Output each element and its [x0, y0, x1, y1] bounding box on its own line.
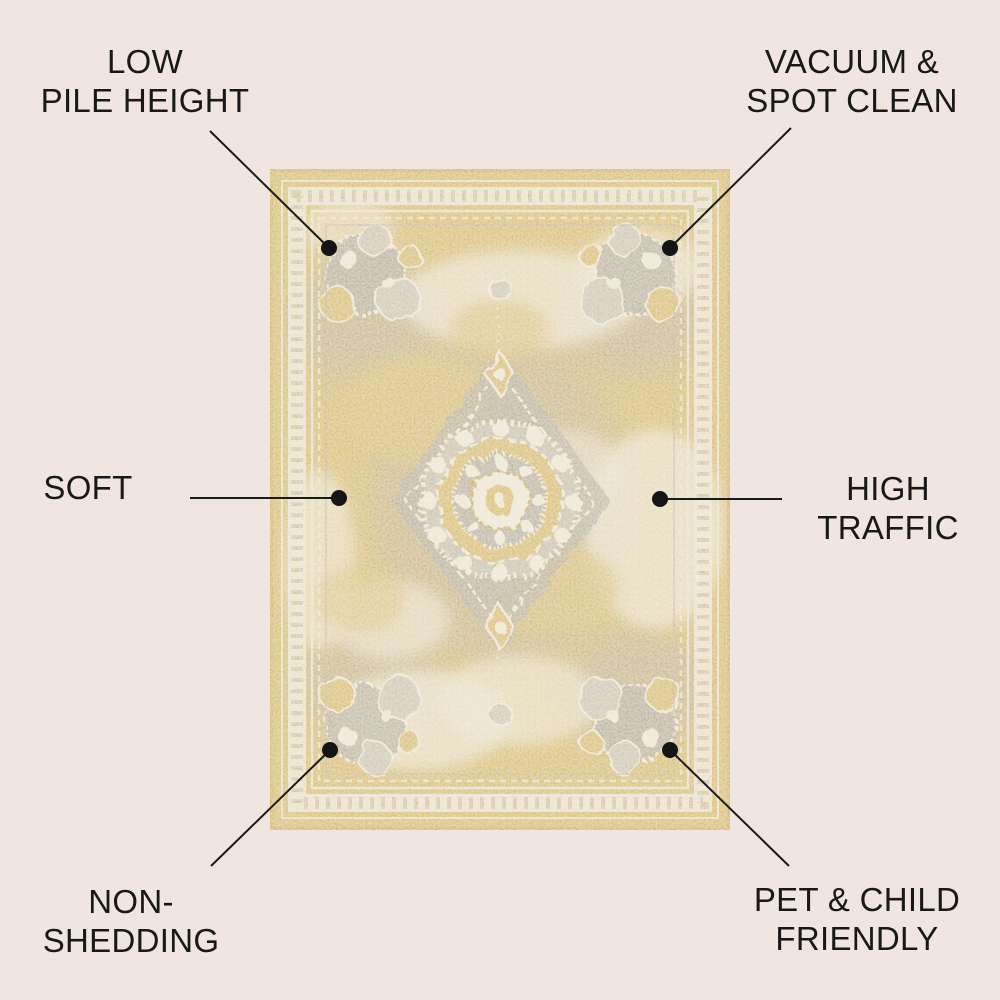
callout-label-low-pile-height: LOW PILE HEIGHT	[0, 42, 290, 120]
callout-label-line: FRIENDLY	[712, 919, 1000, 958]
callout-label-line: SPOT CLEAN	[702, 81, 1000, 120]
callout-label-line: LOW	[0, 42, 290, 81]
callout-label-vacuum-spot-clean: VACUUM & SPOT CLEAN	[702, 42, 1000, 120]
callout-label-line: SOFT	[0, 468, 176, 507]
callout-label-soft: SOFT	[0, 468, 176, 507]
rug-image	[270, 169, 730, 830]
callout-label-high-traffic: HIGH TRAFFIC	[738, 469, 1000, 547]
callout-label-line: SHEDDING	[0, 921, 262, 960]
callout-label-line: PET & CHILD	[712, 880, 1000, 919]
callout-label-line: HIGH	[738, 469, 1000, 508]
callout-label-line: NON-	[0, 882, 262, 921]
callout-label-pet-child-friendly: PET & CHILD FRIENDLY	[712, 880, 1000, 958]
infographic-canvas: LOW PILE HEIGHT VACUUM & SPOT CLEAN SOFT…	[0, 0, 1000, 1000]
rug-grain-overlay	[270, 169, 730, 830]
callout-label-non-shedding: NON- SHEDDING	[0, 882, 262, 960]
callout-label-line: TRAFFIC	[738, 508, 1000, 547]
callout-label-line: VACUUM &	[702, 42, 1000, 81]
callout-label-line: PILE HEIGHT	[0, 81, 290, 120]
